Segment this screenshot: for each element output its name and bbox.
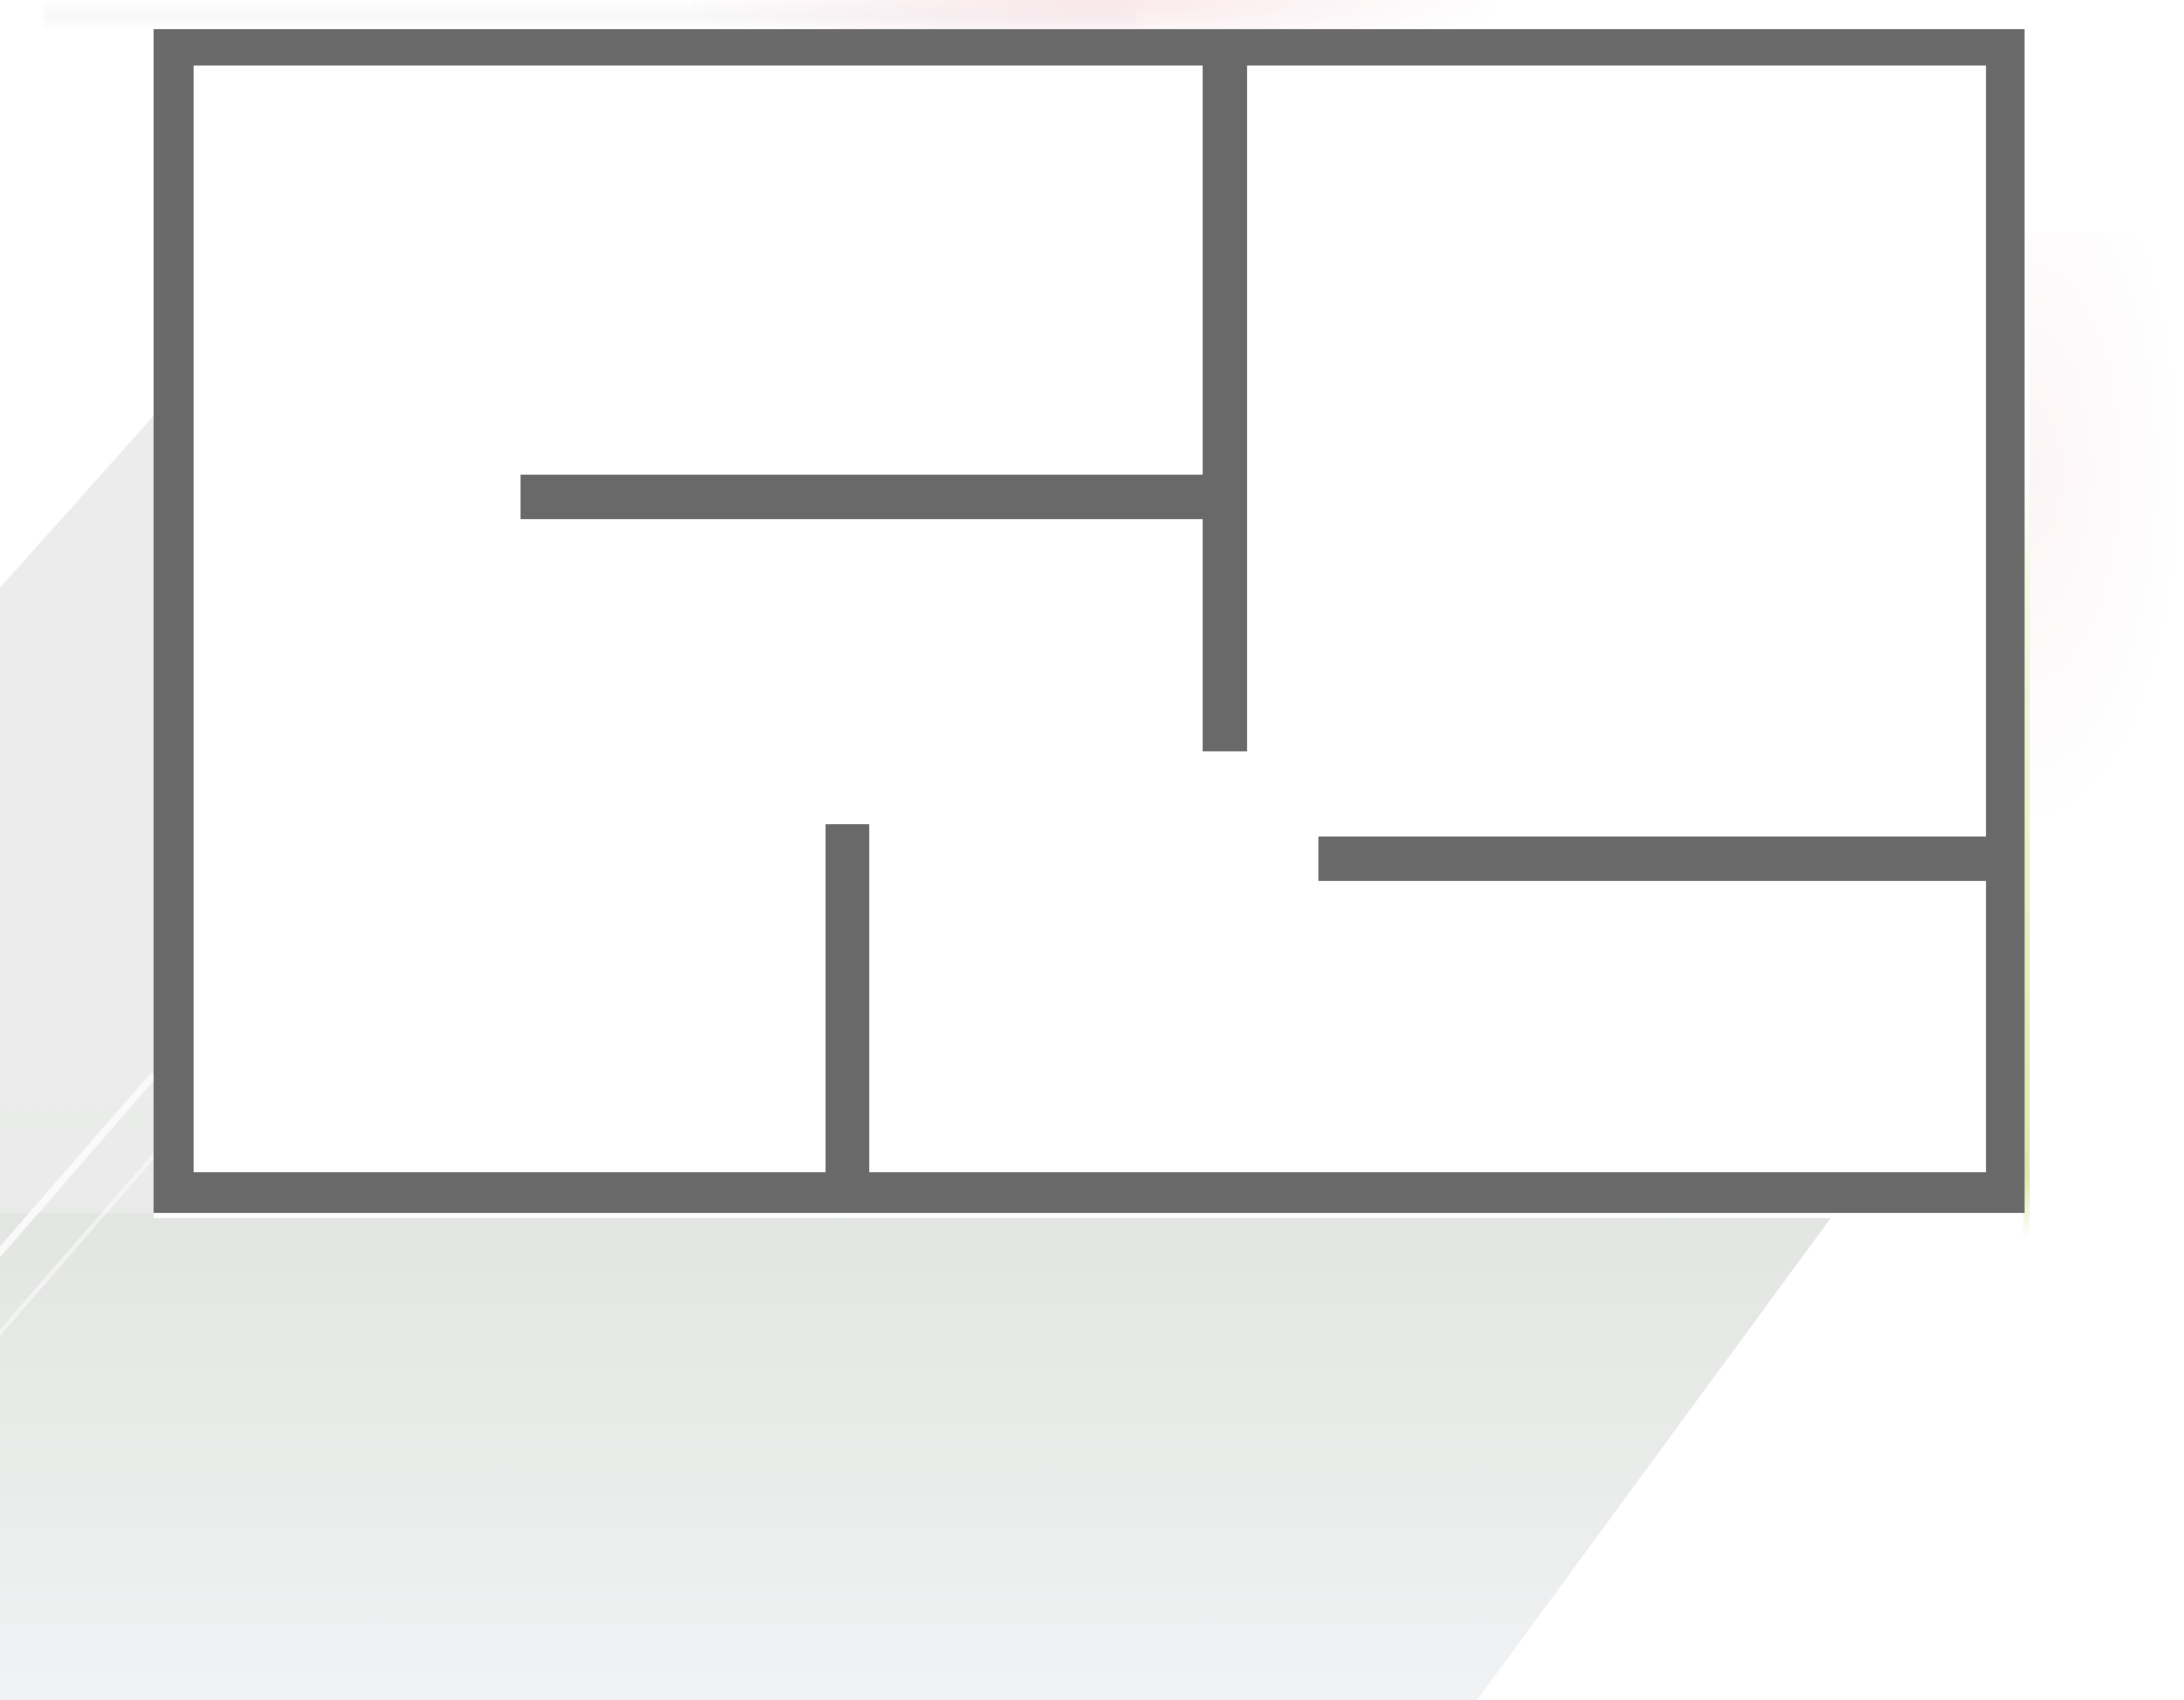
outer-bottom-border bbox=[154, 1172, 2025, 1213]
outer-left-border bbox=[154, 29, 194, 1213]
inner-wall-vertical-top bbox=[1203, 66, 1247, 751]
inner-wall-horizontal-right bbox=[1318, 837, 1986, 881]
screenshot-canvas bbox=[0, 0, 2184, 1700]
outer-right-border bbox=[1986, 29, 2025, 1213]
inner-wall-vertical-bottom bbox=[826, 824, 869, 1172]
floor-plan-interior bbox=[194, 66, 1986, 1172]
outer-top-border bbox=[154, 29, 2025, 66]
inner-wall-horizontal-left bbox=[521, 475, 1203, 519]
floor-plan-diagram bbox=[0, 0, 2184, 1700]
